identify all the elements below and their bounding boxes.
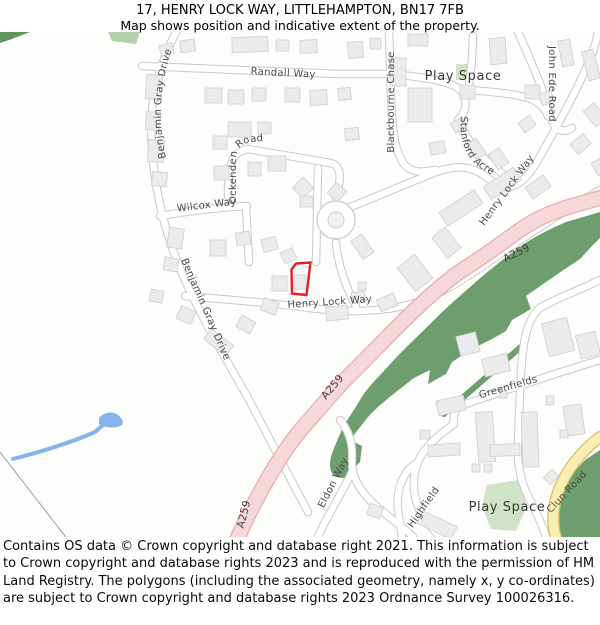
page-subtitle: Map shows position and indicative extent… (0, 18, 600, 33)
map: Randall Way Benjamin Gray Drive Benjamin… (0, 32, 600, 537)
map-canvas: Randall Way Benjamin Gray Drive Benjamin… (0, 32, 600, 537)
property-map-page: 17, HENRY LOCK WAY, LITTLEHAMPTON, BN17 … (0, 0, 600, 625)
map-header: 17, HENRY LOCK WAY, LITTLEHAMPTON, BN17 … (0, 0, 600, 32)
area-label-play-space-bottom: Play Space (469, 500, 546, 515)
road-label-blackbourne: Blackbourne Chase (386, 51, 397, 152)
road-label-john-ede: John Ede Road (546, 45, 557, 122)
area-label-play-space-top: Play Space (425, 69, 502, 84)
page-title: 17, HENRY LOCK WAY, LITTLEHAMPTON, BN17 … (0, 0, 600, 18)
map-footer: Contains OS data © Crown copyright and d… (0, 537, 600, 625)
copyright-text: Contains OS data © Crown copyright and d… (0, 537, 600, 607)
roundabout (317, 201, 355, 239)
